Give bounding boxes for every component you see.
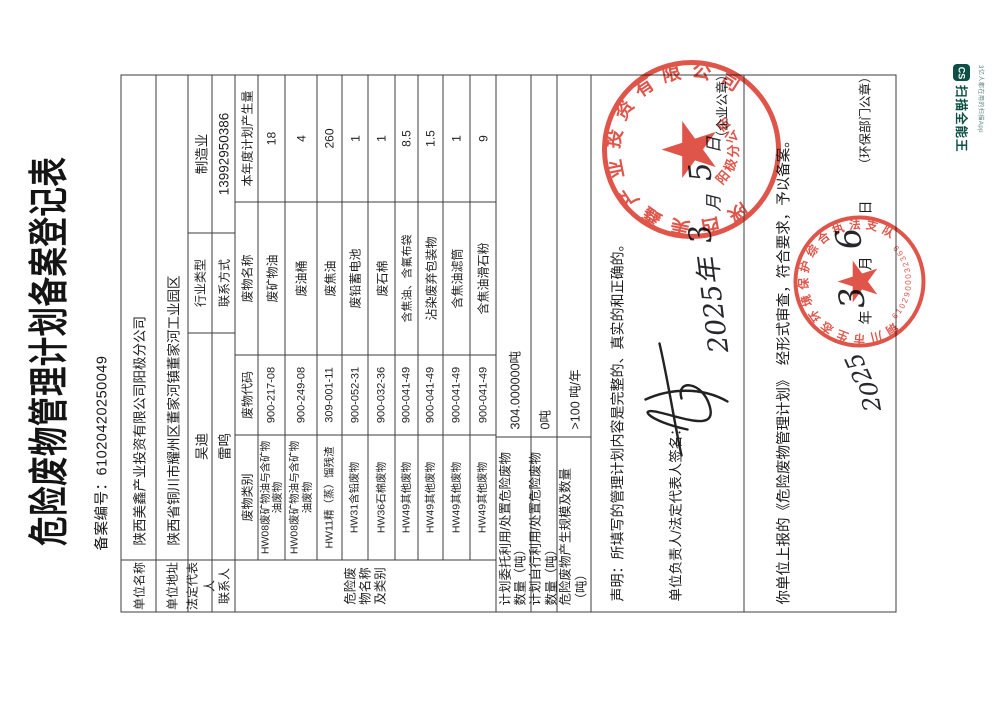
waste-row-amount: 1.5	[417, 74, 443, 202]
waste-row-code: 900-032-36	[367, 354, 395, 435]
svg-text:6102900032369: 6102900032369	[890, 242, 913, 320]
epa-stamp-icon: 铜川市生态环境保护综合执法支队 6102900032369	[791, 213, 927, 349]
waste-row-name: 废焦油	[316, 201, 342, 355]
contact-value: 雷鸣	[211, 332, 235, 560]
waste-row-name: 废矿物油	[257, 201, 285, 355]
waste-row-code: 309-001-11	[316, 354, 342, 435]
waste-header-name: 废物名称	[234, 201, 258, 355]
waste-row-name: 含焦油、含氟布袋	[394, 201, 418, 355]
svg-text:阳极分公司: 阳极分公司	[712, 111, 740, 186]
waste-header-code: 废物代码	[234, 354, 258, 435]
star-icon	[837, 260, 877, 302]
handwritten-signature	[629, 336, 734, 461]
star-icon	[661, 121, 715, 178]
approval-cell: 你单位上报的《危险废物管理计划》 经形式审查，符合要求，予以备案。 20 25 …	[743, 74, 896, 612]
waste-row-category: HW08废矿物油与含矿物油废物	[257, 434, 285, 560]
waste-row-amount: 260	[316, 74, 342, 202]
waste-row-name: 废石棉	[367, 201, 395, 355]
approval-day-char: 日	[855, 200, 875, 214]
legal-rep-label: 法定代表人	[187, 559, 212, 612]
waste-row-name: 沾染废弃包装物	[417, 201, 443, 355]
document: 危险废物管理计划备案登记表 备案编号：61020420250049 单位名称 陕…	[0, 0, 1000, 707]
enterprise-stamp-sub-text: 阳极分公司	[712, 111, 740, 186]
waste-row-name: 废铅蓄电池	[341, 201, 368, 355]
industry-label: 行业类型	[187, 232, 212, 333]
legal-rep-value: 吴迪	[187, 332, 212, 560]
summary-self-value: 0吨	[530, 74, 557, 437]
camscanner-logo-text: CS	[956, 66, 966, 79]
contact-way-label: 联系方式	[211, 232, 235, 333]
waste-row-category: HW49其他废物	[417, 434, 443, 560]
waste-row-category: HW31含铅废物	[341, 434, 368, 560]
summary-self-label: 计划自行利用/处置危险废物数量（吨）	[530, 436, 557, 612]
waste-header-amount: 本年度计划产生量	[234, 74, 258, 202]
waste-row-amount: 1	[442, 74, 470, 202]
waste-row-category: HW49其他废物	[394, 434, 418, 560]
waste-header-category: 废物类别	[234, 434, 258, 560]
contact-label: 联系人	[211, 559, 235, 612]
contact-way-value: 13992950386	[211, 74, 235, 233]
waste-row-category: HW49其他废物	[469, 434, 496, 560]
unit-name-label: 单位名称	[120, 559, 156, 612]
summary-scale-label: 危险废物产生规模及数量（吨）	[556, 436, 591, 612]
camscanner-logo-icon: CS	[953, 64, 970, 81]
waste-row-category: HW49其他废物	[442, 434, 470, 560]
summary-entrusted-label: 计划委托利用/处置危险废物数量（吨）	[495, 436, 531, 612]
camscanner-watermark-tagline: 3亿人都在用的扫描App	[977, 65, 986, 133]
waste-side-label: 危险废物名称及类别	[234, 559, 496, 612]
waste-row-category: HW36石棉废物	[367, 434, 395, 560]
waste-row-amount: 4	[284, 74, 317, 202]
record-number-line: 备案编号：61020420250049	[90, 355, 111, 550]
waste-row-code: 900-041-49	[442, 354, 470, 435]
waste-row-code: 900-052-31	[341, 354, 368, 435]
declaration-cell: 声明：所填写的管理计划内容是完整的、真实的和正确的。 单位负责人/法定代表人签名…	[590, 74, 744, 612]
waste-row-code: 900-249-08	[284, 354, 317, 435]
waste-row-code: 900-041-49	[417, 354, 443, 435]
epa-seal-note: （环保部门公章）	[854, 70, 873, 170]
declaration-statement: 声明：所填写的管理计划内容是完整的、真实的和正确的。	[607, 237, 627, 601]
waste-row-name: 废油桶	[284, 201, 317, 355]
waste-row-name: 含焦油滑石粉	[469, 201, 496, 355]
camscanner-watermark-title: 扫描全能王	[953, 85, 972, 153]
scanned-page: 危险废物管理计划备案登记表 备案编号：61020420250049 单位名称 陕…	[0, 0, 1000, 707]
waste-row-category: HW11精（蒸）馏残渣	[316, 434, 342, 560]
waste-row-amount: 1	[341, 74, 368, 202]
record-number-value: 61020420250049	[94, 355, 110, 475]
waste-row-amount: 1	[367, 74, 395, 202]
unit-address-value: 陕西省铜川市耀州区董家河镇董家河工业园区	[155, 74, 188, 560]
waste-row-code: 900-041-49	[394, 354, 418, 435]
waste-row-code: 900-217-08	[257, 354, 285, 435]
waste-row-amount: 8.5	[394, 74, 418, 202]
record-number-label: 备案编号：	[94, 475, 110, 550]
form-title: 危险废物管理计划备案登记表	[16, 195, 74, 545]
waste-row-amount: 18	[257, 74, 285, 202]
waste-row-name: 含焦油滤筒	[442, 201, 470, 355]
epa-stamp-code: 6102900032369	[890, 242, 913, 320]
waste-row-amount: 9	[469, 74, 496, 202]
waste-row-category: HW08废矿物油与含矿物油废物	[284, 434, 317, 560]
unit-name-value: 陕西美鑫产业投资有限公司阳极分公司	[120, 74, 156, 560]
waste-row-code: 900-041-49	[469, 354, 496, 435]
approval-text: 你单位上报的《危险废物管理计划》 经形式审查，符合要求，予以备案。	[772, 133, 793, 604]
summary-entrusted-value: 304.000000吨	[495, 74, 531, 437]
industry-value: 制造业	[187, 74, 212, 233]
summary-scale-value: >100 吨/年	[556, 74, 591, 437]
